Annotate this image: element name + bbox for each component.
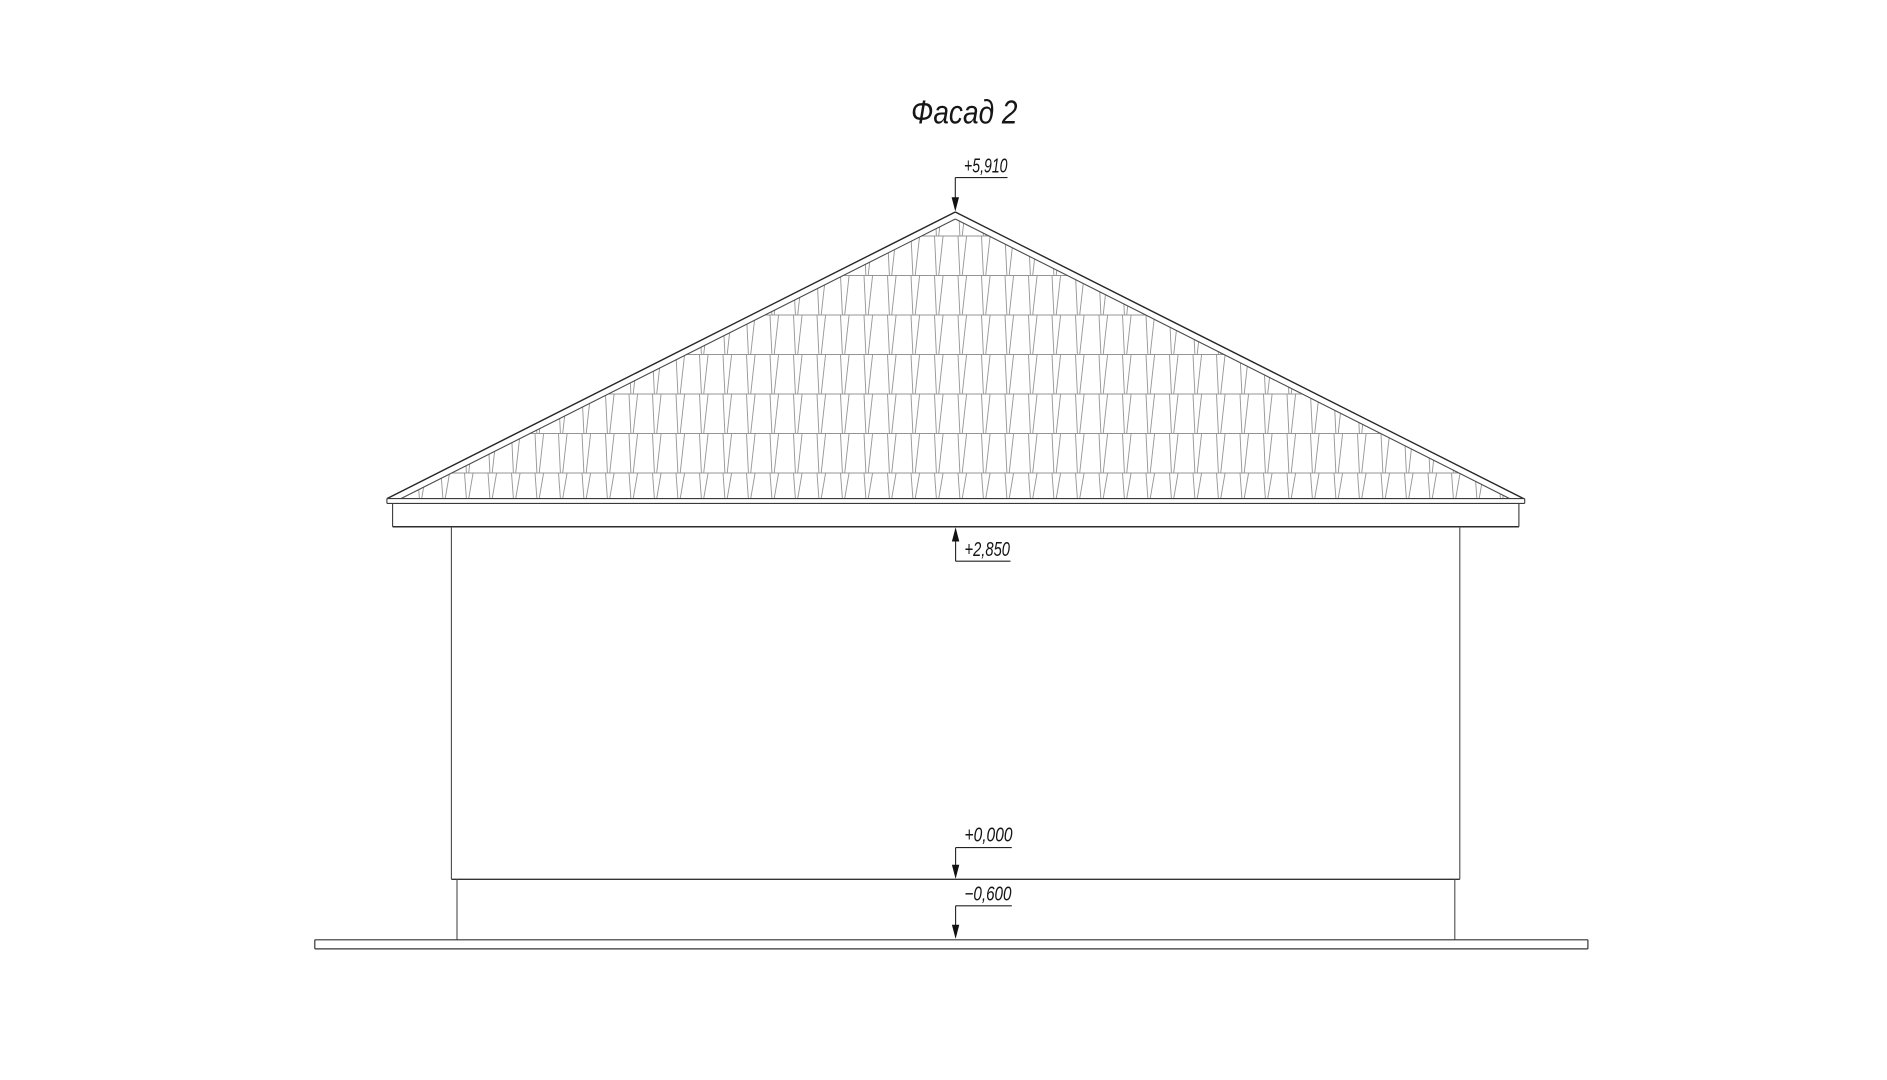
svg-text:+0,000: +0,000 xyxy=(965,824,1013,846)
svg-text:+5,910: +5,910 xyxy=(964,155,1008,177)
svg-text:+2,850: +2,850 xyxy=(965,539,1011,561)
svg-text:Фасад 2: Фасад 2 xyxy=(911,94,1018,131)
svg-text:−0,600: −0,600 xyxy=(965,884,1012,906)
